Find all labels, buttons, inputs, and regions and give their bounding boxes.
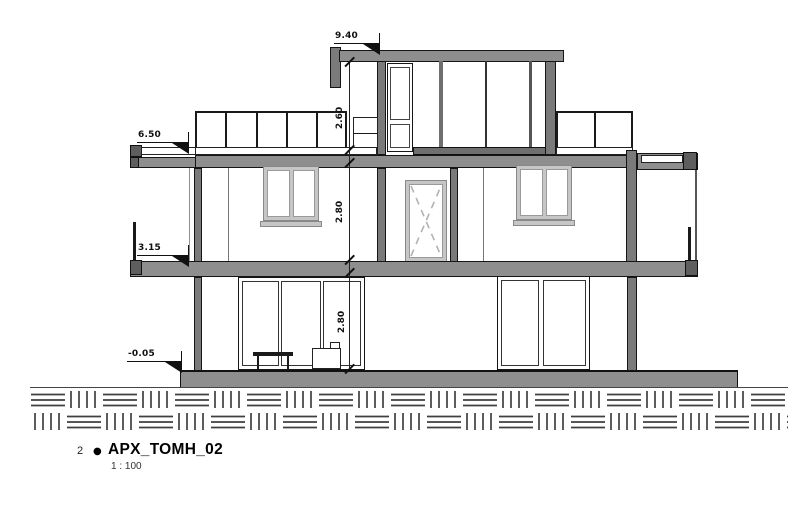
railing-post [556,111,558,148]
marker-line [137,255,189,256]
railing-post [594,111,596,148]
section-drawing: 2.60 2.80 2.80 9.40 6.50 3.15 -0.05 2 ● … [0,0,800,515]
glass-symbol-icon [410,185,442,257]
vertical-dimension-line [349,62,350,370]
table-leg [287,355,289,370]
slab-edge-cap [685,260,698,276]
first-floor-right-wall [626,150,637,272]
balcony-railing-post [133,222,136,262]
penthouse-left-wall [377,61,386,155]
window-pane [293,170,315,217]
bullet-icon: ● [93,446,102,457]
right-balcony-finish [641,155,683,163]
penthouse-door-lower-panel [390,124,410,148]
ground-slab [180,370,738,388]
glass-door-pane [409,184,443,258]
glass-panel [543,280,586,366]
drawing-scale: 1 : 100 [111,461,142,472]
armchair-seat [312,348,341,369]
dimension-label: 2.80 [337,302,349,342]
penthouse-right-wall [545,61,556,155]
balcony-railing-post [688,227,691,262]
balcony-edge-cap [683,152,697,170]
marker-line [127,361,182,362]
elevation-value: -0.05 [128,349,155,359]
first-floor-centre-wall [377,168,386,262]
balcony-railing-line [695,170,697,262]
marker-line [334,43,380,44]
railing-post [286,111,288,148]
interior-partition-line [483,168,484,262]
window-sill [260,221,322,227]
railing-post [195,111,197,148]
glazing-mullion [529,61,532,148]
marker-tick [181,351,182,362]
terrace-floor-finish [556,147,633,155]
elevation-value: 3.15 [138,243,161,253]
railing-post [225,111,227,148]
facade-line [189,168,190,262]
view-number: 2 [77,445,83,457]
window-sill [513,220,575,226]
window-pane [520,169,543,216]
table-leg [257,355,259,370]
penthouse-door-upper-panel [390,67,410,120]
elevation-marker-terrace: 6.50 [137,128,189,143]
elevation-marker-ground: -0.05 [127,347,182,362]
elevation-value: 9.40 [335,31,358,41]
marker-tick [188,132,189,143]
left-balcony-slab [130,157,196,168]
marker-line [137,142,189,143]
glass-panel [501,280,539,366]
ground-floor-right-wall [627,277,637,375]
marker-tick [188,245,189,256]
terrace-railing-top-rail [195,111,347,113]
railing-post [256,111,258,148]
dimension-label: 2.60 [335,98,347,138]
marker-tick [379,33,380,44]
elevation-marker-first-floor: 3.15 [137,241,189,256]
elevation-value: 6.50 [138,130,161,140]
slab-edge-cap [130,260,142,275]
balcony-edge-cap [130,157,139,168]
interior-partition-line [228,168,229,262]
first-floor-slab [130,261,698,277]
earth-hatch [30,389,788,433]
first-floor-wall [450,168,458,262]
glazing-mullion [485,61,487,148]
penthouse-glazing-sill [413,147,546,155]
penthouse-step-line [353,133,378,134]
dimension-label: 2.80 [335,192,347,232]
first-floor-left-wall [194,168,202,262]
railing-post [316,111,318,148]
ground-floor-left-wall [194,277,202,372]
window-pane [267,170,290,217]
glazing-mullion [439,61,443,148]
window-pane [546,169,568,216]
drawing-title: APX_TOMH_02 [108,441,223,459]
grade-line [30,387,788,388]
elevation-marker-roof: 9.40 [334,29,380,44]
railing-post [631,111,633,148]
